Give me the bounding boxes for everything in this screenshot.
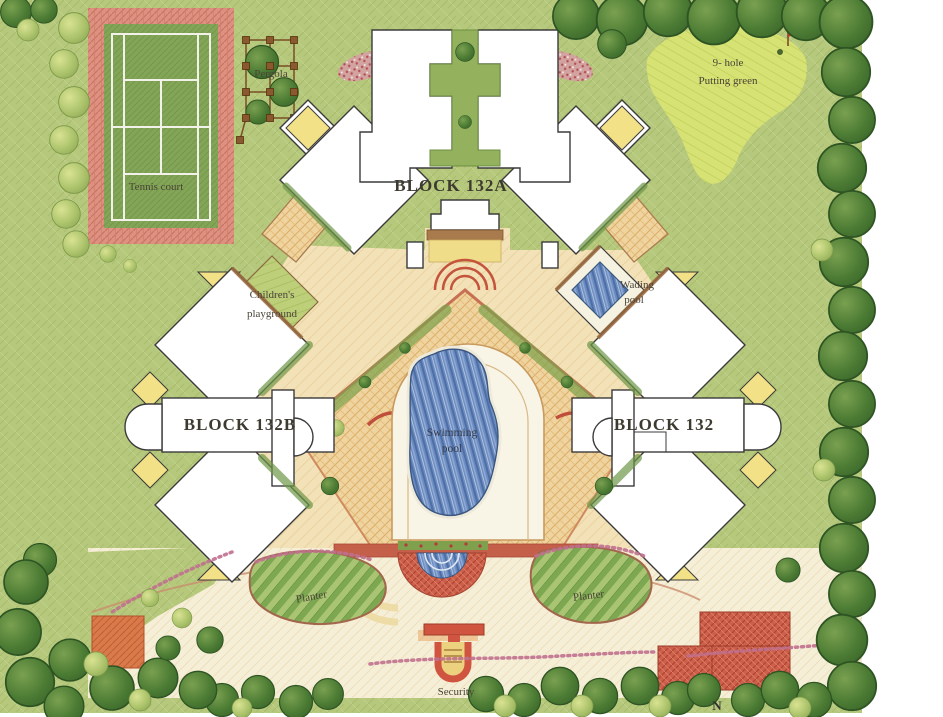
pergola-label: Pergola bbox=[254, 68, 288, 80]
wading-pool-label-line2: pool bbox=[624, 294, 644, 306]
swimming-pool bbox=[392, 344, 544, 540]
childrens-playground-label-line2: playground bbox=[247, 308, 298, 320]
site-plan-canvas: Pergola Tennis court 9- hole Putting gre… bbox=[0, 0, 943, 717]
putting-green-label-line1: 9- hole bbox=[713, 57, 744, 69]
putting-green-label-line2: Putting green bbox=[699, 75, 758, 87]
childrens-playground-label-line1: Children's bbox=[250, 289, 295, 301]
north-indicator: N bbox=[712, 698, 722, 713]
wading-pool-label-line1: Wading bbox=[620, 279, 654, 291]
tennis-court-label: Tennis court bbox=[129, 181, 184, 193]
planter-left bbox=[250, 551, 386, 624]
block-132b-label: BLOCK 132B bbox=[184, 415, 297, 434]
tennis-court bbox=[88, 8, 234, 244]
block-132a-label: BLOCK 132A bbox=[394, 176, 507, 195]
block-132-label: BLOCK 132 bbox=[614, 415, 714, 434]
courtyard-tree bbox=[458, 115, 471, 128]
swimming-pool-label-line1: Swimming bbox=[427, 427, 478, 439]
security-label: Security bbox=[438, 686, 475, 698]
courtyard-tree bbox=[456, 43, 475, 62]
swimming-pool-label-line2: pool bbox=[442, 443, 462, 455]
site-plan-page: Pergola Tennis court 9- hole Putting gre… bbox=[0, 0, 943, 717]
